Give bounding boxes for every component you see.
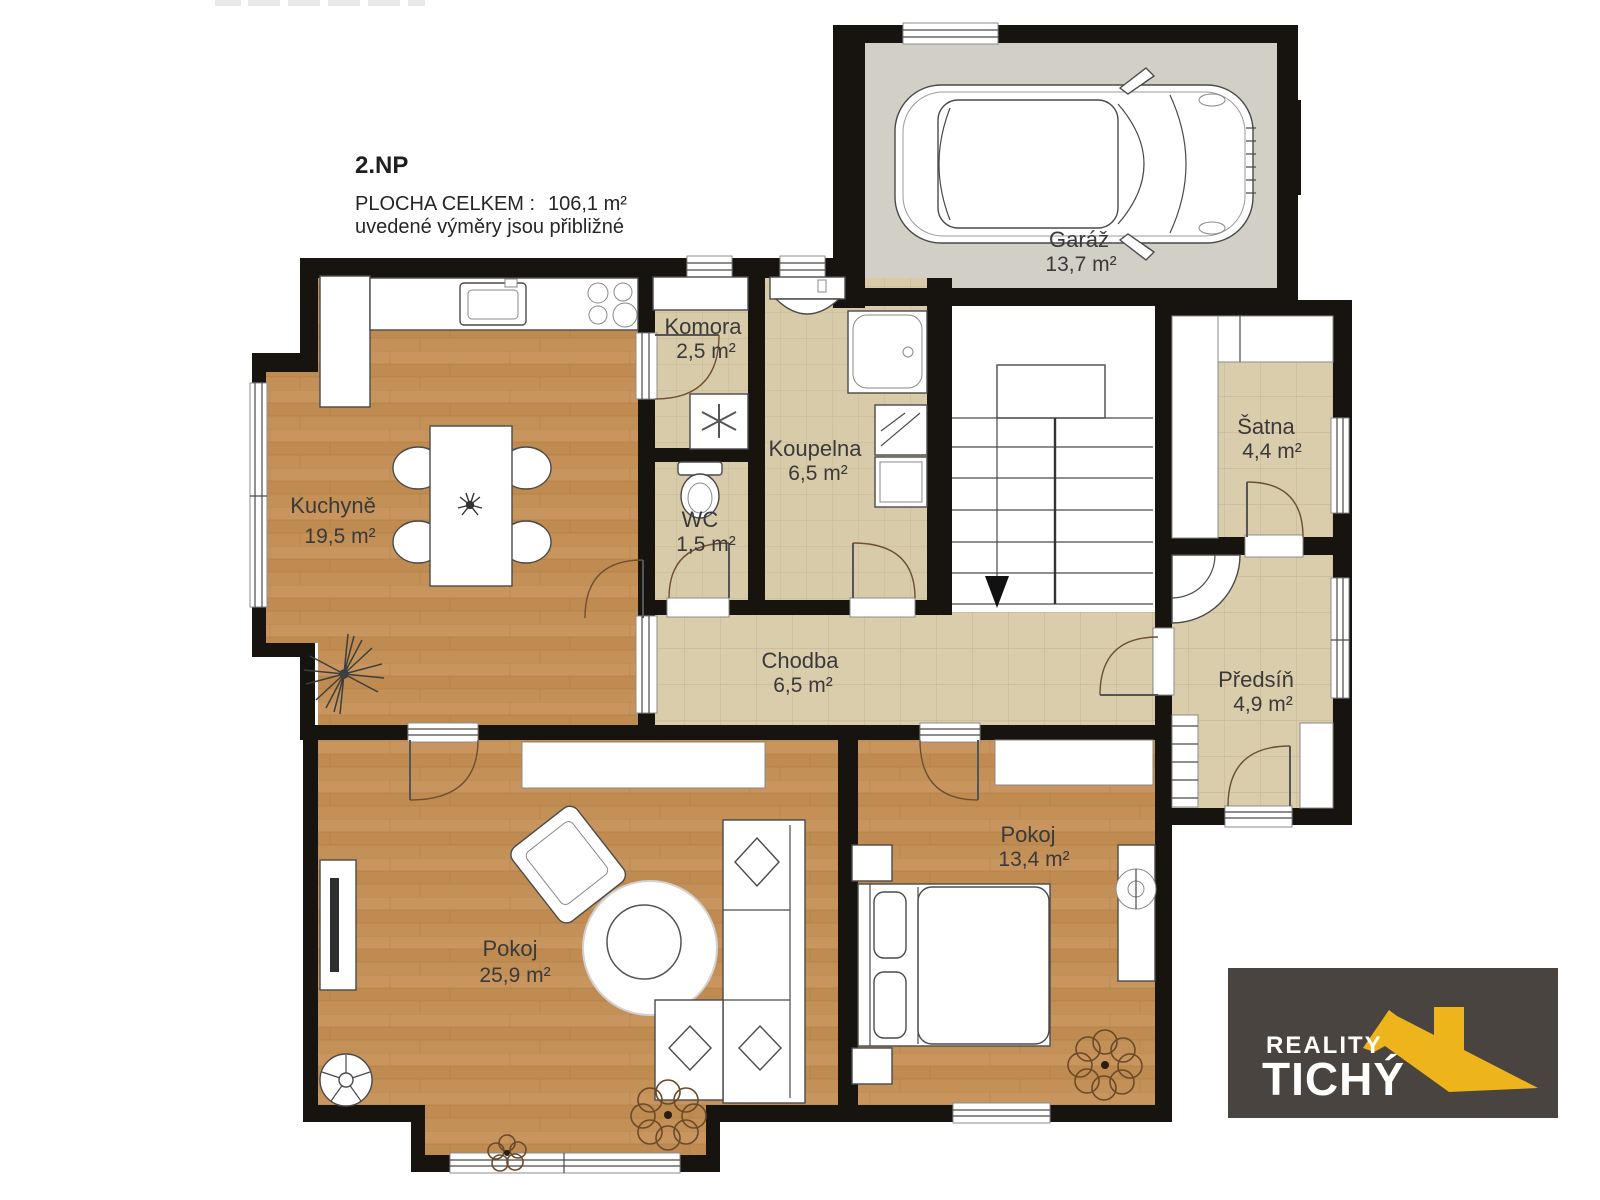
kitchen-sink bbox=[460, 279, 526, 325]
total-area-label: PLOCHA CELKEM : bbox=[355, 193, 535, 215]
door-pokoj1 bbox=[408, 723, 478, 742]
door-kitchen-chodba bbox=[636, 616, 657, 713]
pillow bbox=[874, 972, 906, 1038]
komora-shelf bbox=[653, 277, 748, 310]
ceiling-fan bbox=[320, 1054, 372, 1106]
door-chodba-predsin bbox=[1153, 628, 1174, 695]
total-area-value: 106,1 m² bbox=[548, 193, 627, 215]
garage-side-vent bbox=[1292, 100, 1301, 195]
shower bbox=[848, 311, 927, 393]
label-kuchyne: Kuchyně bbox=[290, 493, 376, 518]
floor-title: 2.NP bbox=[355, 152, 408, 179]
title-block: 2.NP PLOCHA CELKEM : 106,1 m² uvedené vý… bbox=[355, 152, 627, 238]
nightstand bbox=[852, 1048, 892, 1084]
kitchen-tall-cabinet bbox=[320, 276, 370, 407]
door-satna bbox=[1245, 535, 1303, 557]
top-watermark bbox=[215, 0, 425, 6]
logo-text-tichy: TICHÝ bbox=[1262, 1053, 1405, 1105]
floorplan-page: 2.NP PLOCHA CELKEM : 106,1 m² uvedené vý… bbox=[0, 0, 1600, 1200]
label-garaz-area: 13,7 m² bbox=[1045, 253, 1116, 276]
bedroom-wardrobe bbox=[995, 740, 1153, 785]
door-entrance bbox=[1225, 806, 1292, 827]
door-komora bbox=[636, 333, 657, 399]
double-bed bbox=[858, 884, 1050, 1046]
chodba-floor bbox=[655, 612, 1155, 725]
label-pokoj2: Pokoj bbox=[1000, 822, 1055, 847]
label-komora-area: 2,5 m² bbox=[676, 340, 736, 363]
label-pokoj2-area: 13,4 m² bbox=[998, 848, 1069, 871]
label-wc: WC bbox=[682, 507, 719, 532]
shelf bbox=[522, 742, 765, 788]
blanket bbox=[918, 887, 1049, 1044]
shoe-rack bbox=[1172, 715, 1198, 807]
stairs-floor bbox=[952, 306, 1155, 612]
label-chodba: Chodba bbox=[761, 648, 839, 673]
round-table bbox=[607, 905, 681, 979]
label-predsin-area: 4,9 m² bbox=[1233, 693, 1293, 716]
predsin-cabinet bbox=[1300, 723, 1333, 808]
label-satna: Šatna bbox=[1237, 414, 1295, 439]
label-koupelna-area: 6,5 m² bbox=[788, 462, 848, 485]
label-satna-area: 4,4 m² bbox=[1242, 440, 1302, 463]
window-garage bbox=[903, 23, 998, 44]
agency-logo: REALITY TICHÝ bbox=[1228, 968, 1558, 1118]
window-koupelna bbox=[780, 256, 825, 277]
door-wc bbox=[667, 598, 729, 617]
dresser-with-mirror bbox=[1116, 845, 1156, 981]
door-pokoj2 bbox=[920, 723, 980, 742]
bath-cabinet-2 bbox=[875, 457, 927, 507]
bath-cabinet-1 bbox=[875, 405, 927, 455]
door-koupelna bbox=[850, 598, 915, 617]
tv-unit bbox=[320, 860, 356, 990]
floorplan-canvas: 2.NP PLOCHA CELKEM : 106,1 m² uvedené vý… bbox=[0, 0, 1600, 1200]
window-pokoj2-south bbox=[953, 1103, 1050, 1123]
label-kuchyne-area: 19,5 m² bbox=[304, 525, 375, 548]
window-komora bbox=[687, 256, 732, 277]
area-note: uvedené výměry jsou přibližné bbox=[355, 216, 624, 238]
label-komora: Komora bbox=[664, 314, 742, 339]
label-pokoj1: Pokoj bbox=[482, 936, 537, 961]
window-satna-east bbox=[1331, 418, 1349, 513]
pillow bbox=[874, 892, 906, 958]
washing-machine bbox=[690, 394, 748, 449]
satna-wardrobe-left bbox=[1172, 316, 1218, 538]
label-predsin: Předsíň bbox=[1218, 667, 1294, 692]
window-kitchen-west bbox=[250, 383, 267, 607]
nightstand bbox=[852, 845, 892, 881]
label-koupelna: Koupelna bbox=[769, 436, 863, 461]
label-garaz: Garáž bbox=[1049, 227, 1109, 252]
label-pokoj1-area: 25,9 m² bbox=[479, 964, 550, 987]
window-predsin-east bbox=[1331, 578, 1349, 698]
window-pokoj1-bay bbox=[450, 1153, 680, 1173]
label-wc-area: 1,5 m² bbox=[676, 533, 736, 556]
label-chodba-area: 6,5 m² bbox=[773, 674, 833, 697]
